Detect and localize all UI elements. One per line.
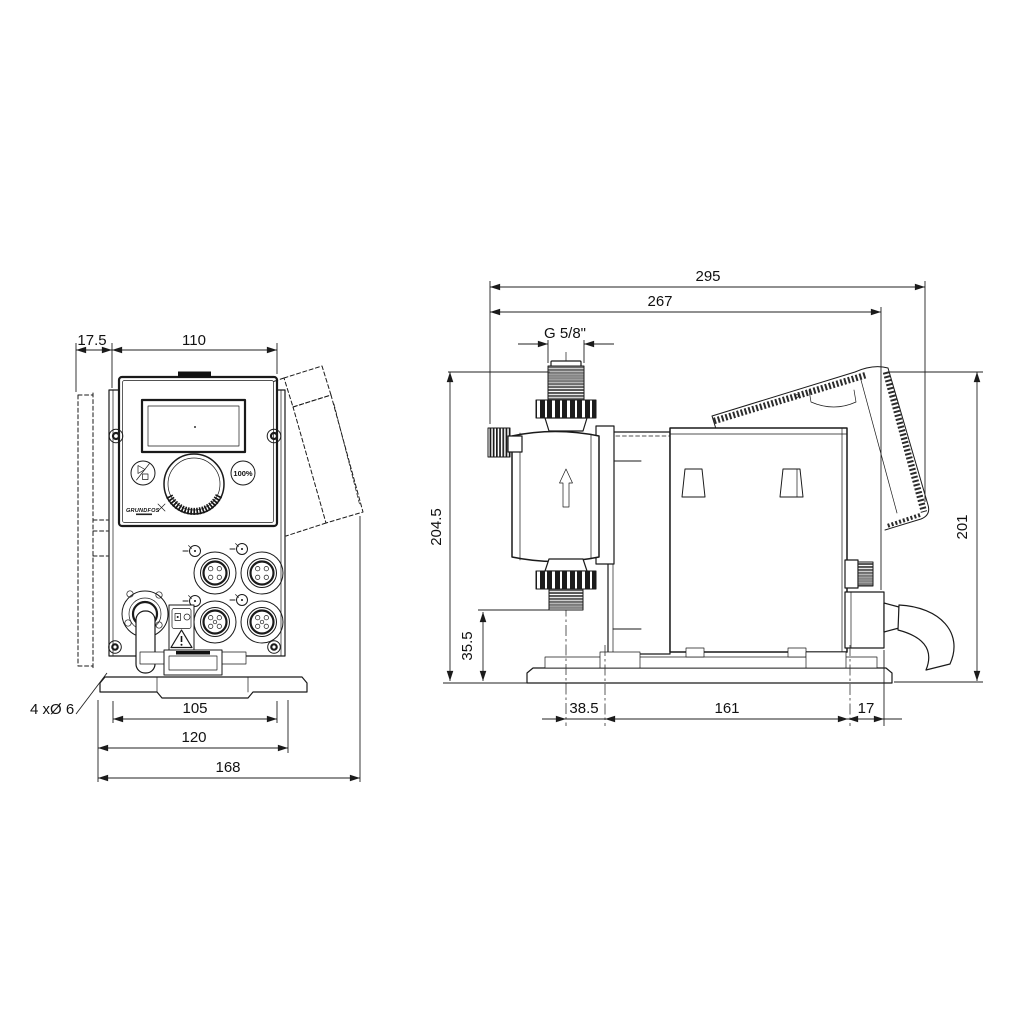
dim-slot-spacing: 161 bbox=[714, 700, 739, 717]
base-plate-front bbox=[100, 677, 307, 698]
discharge-thread bbox=[549, 589, 583, 610]
dim-mounting-holes: 4 xØ 6 bbox=[30, 701, 74, 718]
rear-connections bbox=[845, 560, 954, 670]
m12-connector[interactable] bbox=[241, 552, 283, 594]
dim-bracket-depth: 17.5 bbox=[77, 332, 106, 349]
dim-plate-width: 120 bbox=[181, 729, 206, 746]
dim-body-width: 110 bbox=[182, 332, 206, 349]
dim-overall-width: 168 bbox=[215, 759, 240, 776]
connector-symbol-icons bbox=[183, 544, 248, 607]
wall-bracket bbox=[78, 393, 108, 668]
top-tab bbox=[178, 372, 211, 378]
leader-line bbox=[76, 673, 107, 714]
union-nut bbox=[536, 571, 596, 589]
brand-logo-text: GRUNDFOS bbox=[126, 508, 160, 514]
control-module-hidden bbox=[272, 366, 363, 536]
mounting-rail-clip bbox=[140, 650, 246, 675]
connector-panel bbox=[109, 544, 283, 676]
drawing-canvas: 100% GRUNDFOS bbox=[0, 0, 1024, 1024]
hundred-percent-label: 100% bbox=[233, 469, 253, 478]
warning-label bbox=[169, 605, 194, 651]
dim-depth-to-module: 267 bbox=[647, 293, 672, 310]
dosing-head-body bbox=[512, 432, 599, 562]
pump-body-side bbox=[596, 428, 847, 668]
dim-height-port-bottom: 35.5 bbox=[459, 631, 476, 660]
control-panel: 100% GRUNDFOS bbox=[109, 372, 281, 527]
dim-slot-to-edge: 17 bbox=[858, 700, 875, 717]
dim-overall-depth: 295 bbox=[695, 268, 720, 285]
dim-overall-height: 201 bbox=[954, 514, 971, 539]
dim-thread: G 5/8" bbox=[544, 325, 586, 342]
suction-thread bbox=[548, 366, 584, 402]
m12-connector[interactable] bbox=[194, 601, 236, 643]
union-nut bbox=[536, 400, 596, 418]
mains-cable bbox=[898, 605, 954, 670]
m12-connector[interactable] bbox=[194, 552, 236, 594]
rear-thread-stub bbox=[858, 562, 873, 586]
dim-height-port-top: 204.5 bbox=[428, 508, 445, 546]
bleed-valve[interactable] bbox=[488, 428, 510, 457]
dim-head-to-slot: 38.5 bbox=[569, 700, 598, 717]
m12-connector[interactable] bbox=[241, 601, 283, 643]
side-view: 295 267 G 5/8" 204.5 35.5 201 38.5 161 1… bbox=[428, 268, 983, 726]
dim-hole-spacing: 105 bbox=[182, 700, 207, 717]
back-plate bbox=[608, 432, 670, 654]
front-view: 100% GRUNDFOS bbox=[30, 332, 363, 782]
display bbox=[142, 400, 245, 452]
motor-housing bbox=[670, 428, 847, 652]
technical-drawing: 100% GRUNDFOS bbox=[0, 0, 1024, 1024]
